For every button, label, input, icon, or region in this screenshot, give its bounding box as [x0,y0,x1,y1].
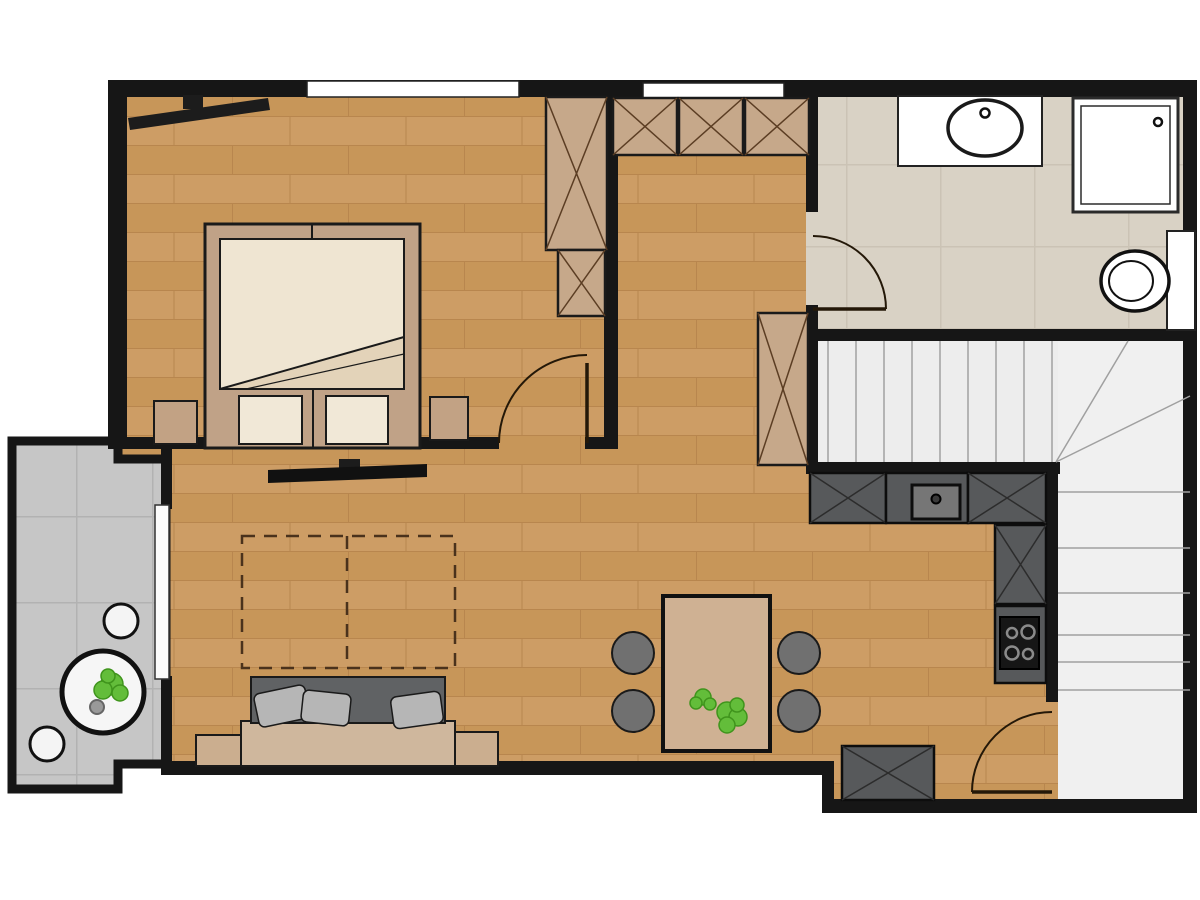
floor-plan [0,0,1200,900]
dining-plant-small-3 [704,698,716,710]
wall-left-bedroom [108,80,127,449]
sofa-pillow-2 [300,690,351,727]
side-table-left [196,735,241,766]
bed-pillow-left [239,396,302,444]
kitchen-sink-faucet [932,495,941,504]
wall-stairs-living [1046,462,1058,702]
sliding-door-balcony [155,505,169,679]
bathroom-sink-faucet [981,109,990,118]
dining-chair-bottom-left [612,690,654,732]
wall-living-left-upper [161,449,172,509]
plan-layer [12,80,1197,813]
wall-right [1183,80,1197,813]
window-bedroom [307,81,519,97]
balcony-cup [90,700,104,714]
floor-stairs-lower [1058,336,1192,806]
balcony-plant-2 [94,681,112,699]
dining-plant-large-4 [730,698,744,712]
window-hallway [643,83,784,99]
wall-bathroom-bottom [806,329,1192,341]
nightstand-left [154,401,197,444]
shower-drain [1154,118,1162,126]
dining-table [663,596,770,751]
toilet-bowl-inner [1109,261,1153,301]
balcony-plant-4 [101,669,115,683]
toilet-cistern [1167,231,1195,330]
bed-pillow-right [326,396,388,444]
stove-cooktop [1000,617,1039,669]
dining-plant-small-2 [690,697,702,709]
wall-living-left-lower [161,676,172,770]
floor-stairs-upper [818,336,1058,468]
tv-mount-bedroom-icon [183,95,203,109]
side-table-right [455,732,498,766]
balcony-plant-3 [112,685,128,701]
balcony-stool-top [104,604,138,638]
dining-chair-top-left [612,632,654,674]
sofa-pillow-3 [390,691,444,730]
balcony-stool-bottom [30,727,64,761]
shower-tray [1073,98,1178,212]
dining-chair-top-right [778,632,820,674]
dining-plant-large-3 [719,717,735,733]
dining-chair-bottom-right [778,690,820,732]
wall-bedroom-bottom-right [585,437,618,449]
sofa-base [241,721,455,766]
nightstand-right [430,397,468,440]
